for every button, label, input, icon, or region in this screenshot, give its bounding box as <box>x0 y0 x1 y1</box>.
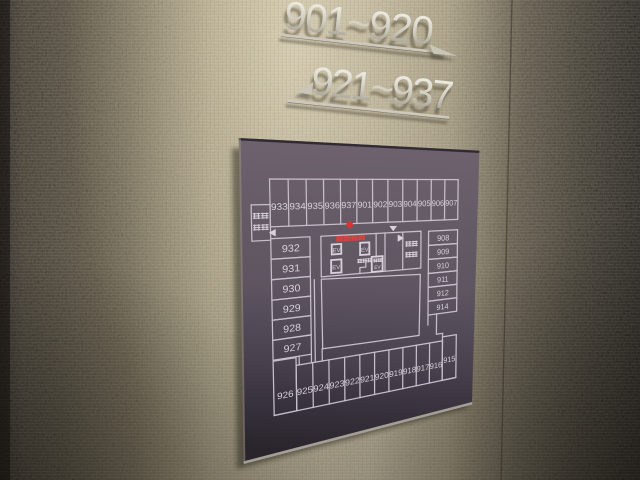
svg-text:910: 910 <box>437 261 449 271</box>
svg-text:908: 908 <box>437 233 449 243</box>
svg-text:933: 933 <box>271 202 288 213</box>
svg-text:905: 905 <box>418 199 431 209</box>
svg-text:929: 929 <box>283 303 301 316</box>
svg-text:907: 907 <box>445 198 457 208</box>
svg-text:934: 934 <box>289 201 305 212</box>
svg-text:909: 909 <box>437 247 449 257</box>
svg-text:932: 932 <box>282 242 300 255</box>
svg-text:902: 902 <box>373 199 387 209</box>
svg-text:EV: EV <box>361 247 369 254</box>
svg-text:930: 930 <box>282 283 300 295</box>
svg-text:936: 936 <box>325 200 340 210</box>
svg-text:903: 903 <box>389 200 403 209</box>
svg-text:901: 901 <box>358 199 373 209</box>
svg-text:912: 912 <box>437 288 449 299</box>
svg-text:EV: EV <box>333 248 341 254</box>
svg-text:914: 914 <box>436 301 448 312</box>
svg-text:911: 911 <box>437 274 449 285</box>
svg-text:937: 937 <box>341 200 356 210</box>
svg-text:935: 935 <box>307 201 323 211</box>
svg-text:906: 906 <box>432 198 444 208</box>
svg-text:EV: EV <box>332 265 340 272</box>
svg-text:904: 904 <box>403 199 417 209</box>
svg-text:931: 931 <box>282 263 300 275</box>
